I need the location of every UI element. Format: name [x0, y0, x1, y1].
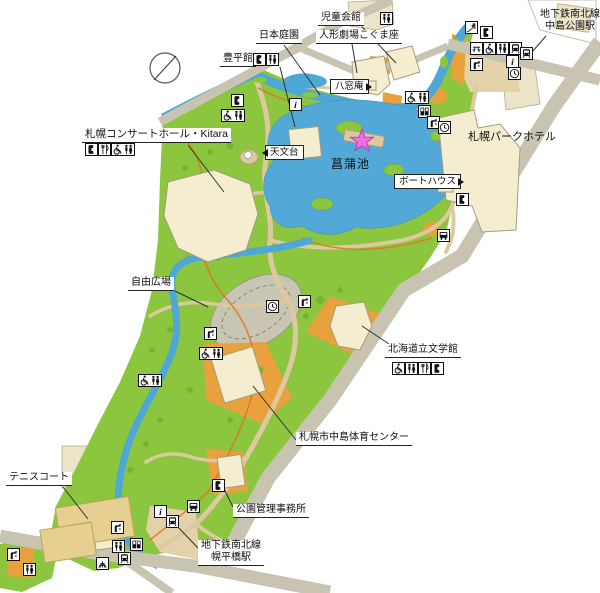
kitara-building — [164, 170, 258, 262]
compass-north-icon — [150, 53, 180, 83]
park-map: i — [0, 0, 600, 593]
hoheikan-building — [289, 127, 322, 160]
boathouse-building — [438, 179, 453, 192]
map-base: i — [0, 0, 600, 593]
observatory-mound — [240, 150, 258, 164]
kanri-jimusho-building — [217, 454, 245, 488]
hassoan-building — [365, 81, 376, 90]
